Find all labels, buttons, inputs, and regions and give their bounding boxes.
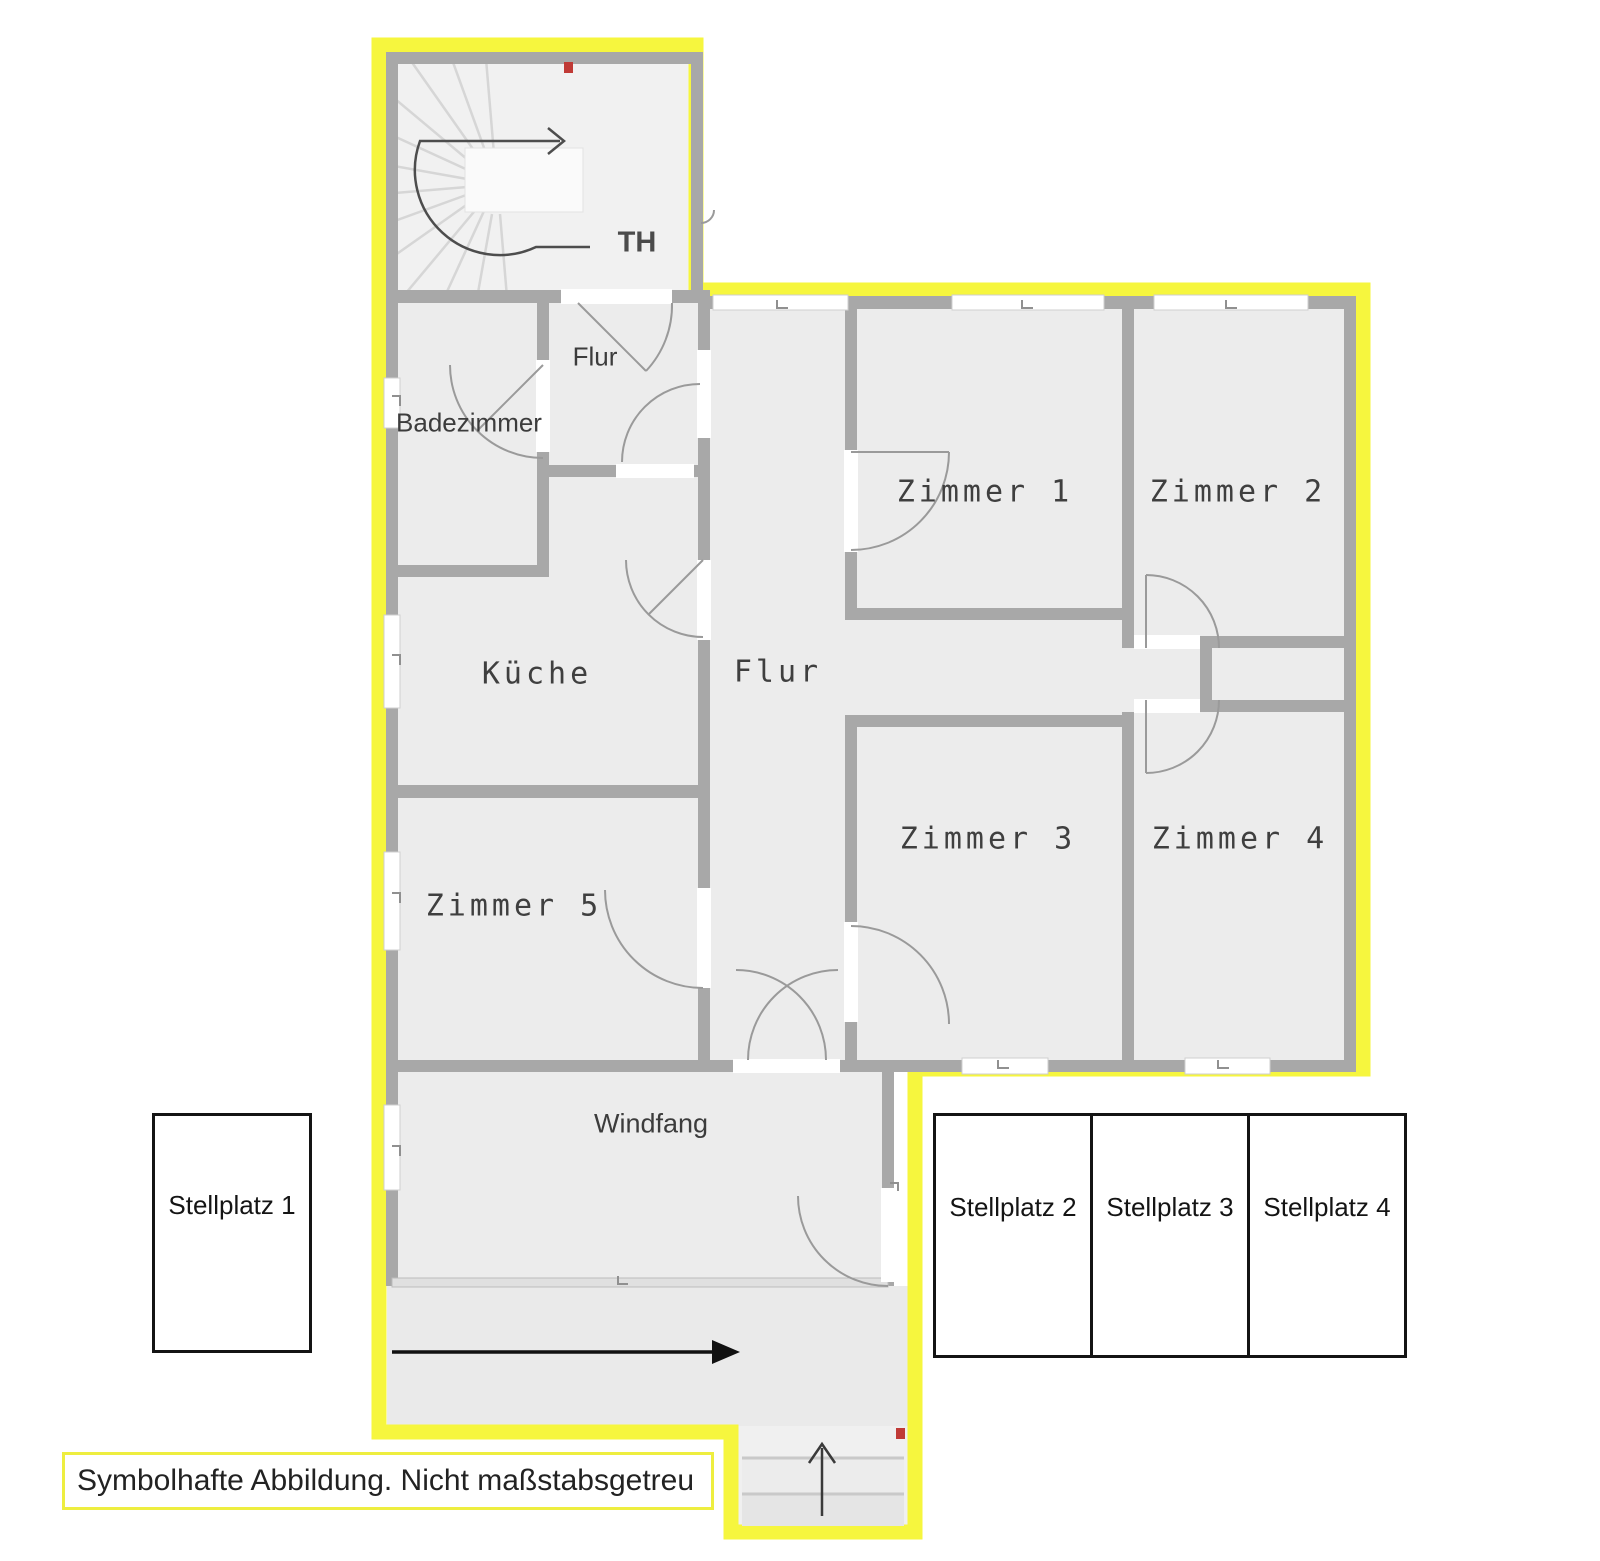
room-label-kueche: Küche [482,657,592,692]
room-label-zimmer-3: Zimmer 3 [900,822,1077,857]
parking-row: Stellplatz 2 Stellplatz 3 Stellplatz 4 [933,1113,1407,1358]
room-label-zimmer-2: Zimmer 2 [1150,475,1327,510]
room-label-zimmer-5: Zimmer 5 [426,889,603,924]
room-label-flur-main: Flur [734,655,822,690]
disclaimer-box: Symbolhafte Abbildung. Nicht maßstabsget… [62,1452,714,1510]
room-label-zimmer-1: Zimmer 1 [897,475,1074,510]
parking-space-1: Stellplatz 1 [152,1113,312,1353]
room-label-badezimmer: Badezimmer [396,408,542,439]
disclaimer-text: Symbolhafte Abbildung. Nicht maßstabsget… [77,1464,694,1498]
room-label-windfang: Windfang [594,1109,708,1140]
parking-label-3: Stellplatz 3 [1106,1192,1233,1223]
windfang-glass-wall [392,1278,888,1287]
room-label-flur-upper: Flur [573,342,618,373]
floor-plan: TH Flur Badezimmer Küche Flur Zimmer 1 Z… [0,0,1600,1561]
red-marker-icon-stairwell [564,62,573,73]
parking-label-2: Stellplatz 2 [949,1192,1076,1223]
parking-space-3: Stellplatz 3 [1090,1113,1250,1358]
room-label-zimmer-4: Zimmer 4 [1152,822,1329,857]
parking-space-4: Stellplatz 4 [1247,1113,1407,1358]
parking-space-2: Stellplatz 2 [933,1113,1093,1358]
parking-label-4: Stellplatz 4 [1263,1192,1390,1223]
parking-label-1: Stellplatz 1 [168,1190,295,1221]
red-marker-icon-entrance [896,1428,905,1439]
room-label-th: TH [618,227,657,260]
